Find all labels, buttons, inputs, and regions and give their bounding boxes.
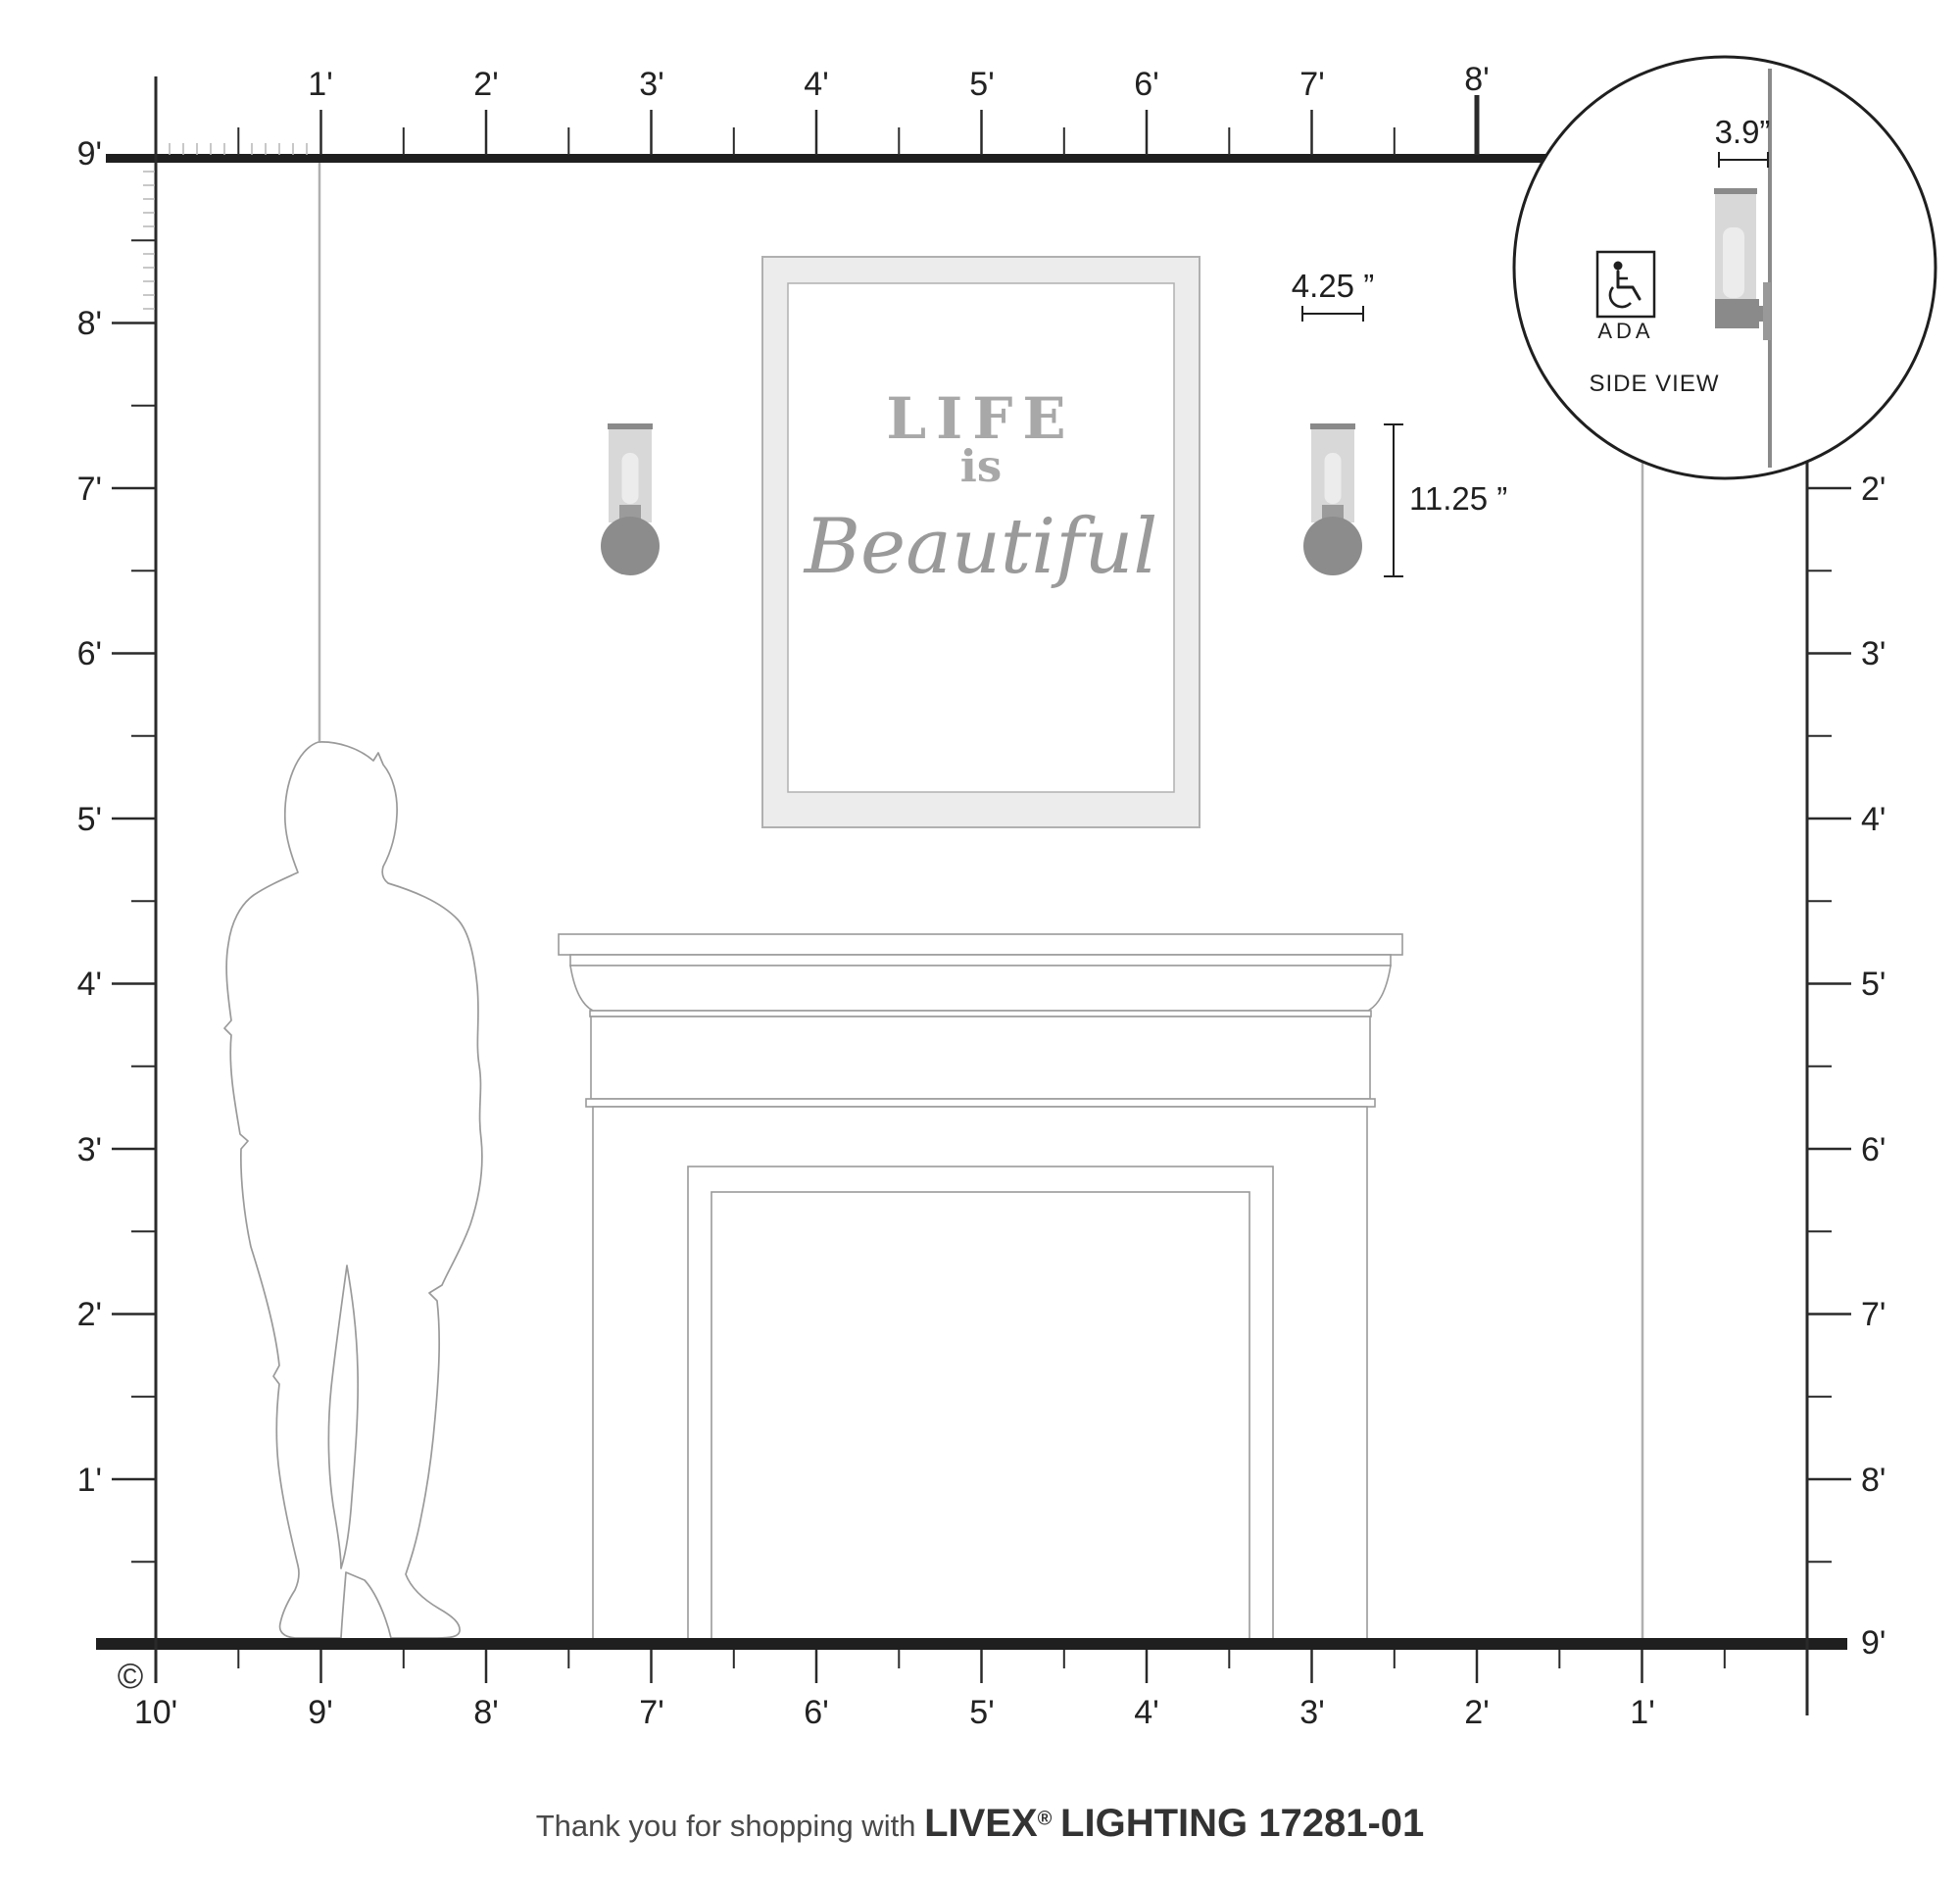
- svg-text:9': 9': [1861, 1624, 1886, 1662]
- width-dimension-label: 4.25 ”: [1292, 268, 1374, 304]
- top-ruler: 1' 2' 3' 4' 5' 6' 7' 8': [170, 61, 1490, 155]
- left-ruler: 9' 8' 7' 6' 5' 4' 3' 2' 1': [77, 135, 155, 1562]
- footer: Thank you for shopping with LIVEX® LIGHT…: [536, 1802, 1425, 1846]
- copyright-symbol: ©: [118, 1656, 144, 1696]
- svg-text:6': 6': [1134, 66, 1158, 103]
- svg-text:4': 4': [1861, 801, 1886, 838]
- mantel-lip: [570, 955, 1391, 966]
- svg-text:7': 7': [639, 1694, 663, 1731]
- fireplace: [559, 934, 1402, 1644]
- registered-trademark-symbol: ®: [1038, 1809, 1053, 1830]
- mantel-cove: [570, 966, 1391, 1011]
- svg-text:3': 3': [1861, 635, 1886, 672]
- svg-text:2': 2': [473, 66, 498, 103]
- person-silhouette: [224, 742, 482, 1638]
- svg-text:8': 8': [1861, 1462, 1886, 1499]
- svg-text:1': 1': [308, 66, 332, 103]
- left-ruler-half-ticks: [131, 240, 155, 1562]
- svg-text:2': 2': [77, 1296, 102, 1333]
- svg-text:2': 2': [1464, 1694, 1489, 1731]
- svg-text:1': 1': [77, 1462, 102, 1499]
- side-view-inset: 3.9” ADA SIDE VIEW: [1514, 57, 1935, 478]
- bottom-ruler: 10' 9' 8' 7' 6' 5' 4' 3' 2' 1': [134, 1650, 1725, 1731]
- depth-dimension-label: 3.9”: [1715, 114, 1771, 150]
- ceiling-line: [106, 154, 1558, 163]
- svg-text:4': 4': [77, 966, 102, 1003]
- bead-molding-bottom: [586, 1099, 1375, 1107]
- frieze-panel: [591, 1017, 1370, 1099]
- svg-text:3': 3': [77, 1131, 102, 1168]
- height-dimension-label: 11.25 ”: [1409, 480, 1507, 517]
- footer-brand: LIVEX: [924, 1802, 1038, 1845]
- right-sconce: [1303, 423, 1362, 575]
- framed-artwork: LIFE is Beautiful: [762, 257, 1200, 827]
- right-ruler-labels: 2' 3' 4' 5' 6' 7' 8' 9': [1861, 471, 1886, 1662]
- svg-text:6': 6': [77, 635, 102, 672]
- person-outline: [224, 742, 482, 1638]
- svg-text:7': 7': [1861, 1296, 1886, 1333]
- footer-message: Thank you for shopping with: [536, 1809, 916, 1843]
- svg-text:5': 5': [969, 1694, 994, 1731]
- ada-label: ADA: [1597, 319, 1653, 343]
- svg-text:3': 3': [1299, 1694, 1324, 1731]
- svg-text:5': 5': [1861, 966, 1886, 1003]
- svg-text:6': 6': [1861, 1131, 1886, 1168]
- bottom-ruler-labels: 10' 9' 8' 7' 6' 5' 4' 3' 2' 1': [134, 1694, 1655, 1731]
- side-view-label: SIDE VIEW: [1589, 371, 1719, 397]
- firebox-surround-inner: [711, 1192, 1249, 1644]
- artwork-text-beautiful: Beautiful: [803, 503, 1158, 591]
- left-ruler-labels: 9' 8' 7' 6' 5' 4' 3' 2' 1': [77, 135, 102, 1499]
- svg-text:1': 1': [1630, 1694, 1654, 1731]
- artwork-text-is: is: [960, 440, 1002, 492]
- svg-text:3': 3': [639, 66, 663, 103]
- svg-text:4': 4': [1134, 1694, 1158, 1731]
- svg-text:10': 10': [134, 1694, 177, 1731]
- svg-text:8': 8': [77, 305, 102, 342]
- mantel-shelf: [559, 934, 1402, 955]
- svg-text:9': 9': [77, 135, 102, 173]
- svg-text:2': 2': [1861, 471, 1886, 508]
- svg-text:4': 4': [804, 66, 828, 103]
- floor-line: [96, 1638, 1847, 1650]
- right-ruler-half-ticks: [1808, 571, 1832, 1562]
- left-sconce: [601, 423, 660, 575]
- right-ruler: 2' 3' 4' 5' 6' 7' 8' 9': [1808, 471, 1886, 1662]
- svg-text:7': 7': [1299, 66, 1324, 103]
- svg-text:5': 5': [77, 801, 102, 838]
- right-ruler-ticks: [1808, 488, 1851, 1479]
- ada-icon: [1597, 252, 1654, 317]
- svg-text:9': 9': [308, 1694, 332, 1731]
- svg-text:5': 5': [969, 66, 994, 103]
- top-ruler-labels: 1' 2' 3' 4' 5' 6' 7' 8': [308, 61, 1489, 103]
- svg-text:8': 8': [473, 1694, 498, 1731]
- dimension-diagram: LIFE is Beautiful: [0, 0, 1960, 1887]
- bead-molding-top: [590, 1011, 1371, 1017]
- svg-text:6': 6': [804, 1694, 828, 1731]
- footer-product: LIGHTING 17281-01: [1060, 1802, 1424, 1845]
- svg-text:7': 7': [77, 471, 102, 508]
- svg-text:8': 8': [1464, 61, 1489, 98]
